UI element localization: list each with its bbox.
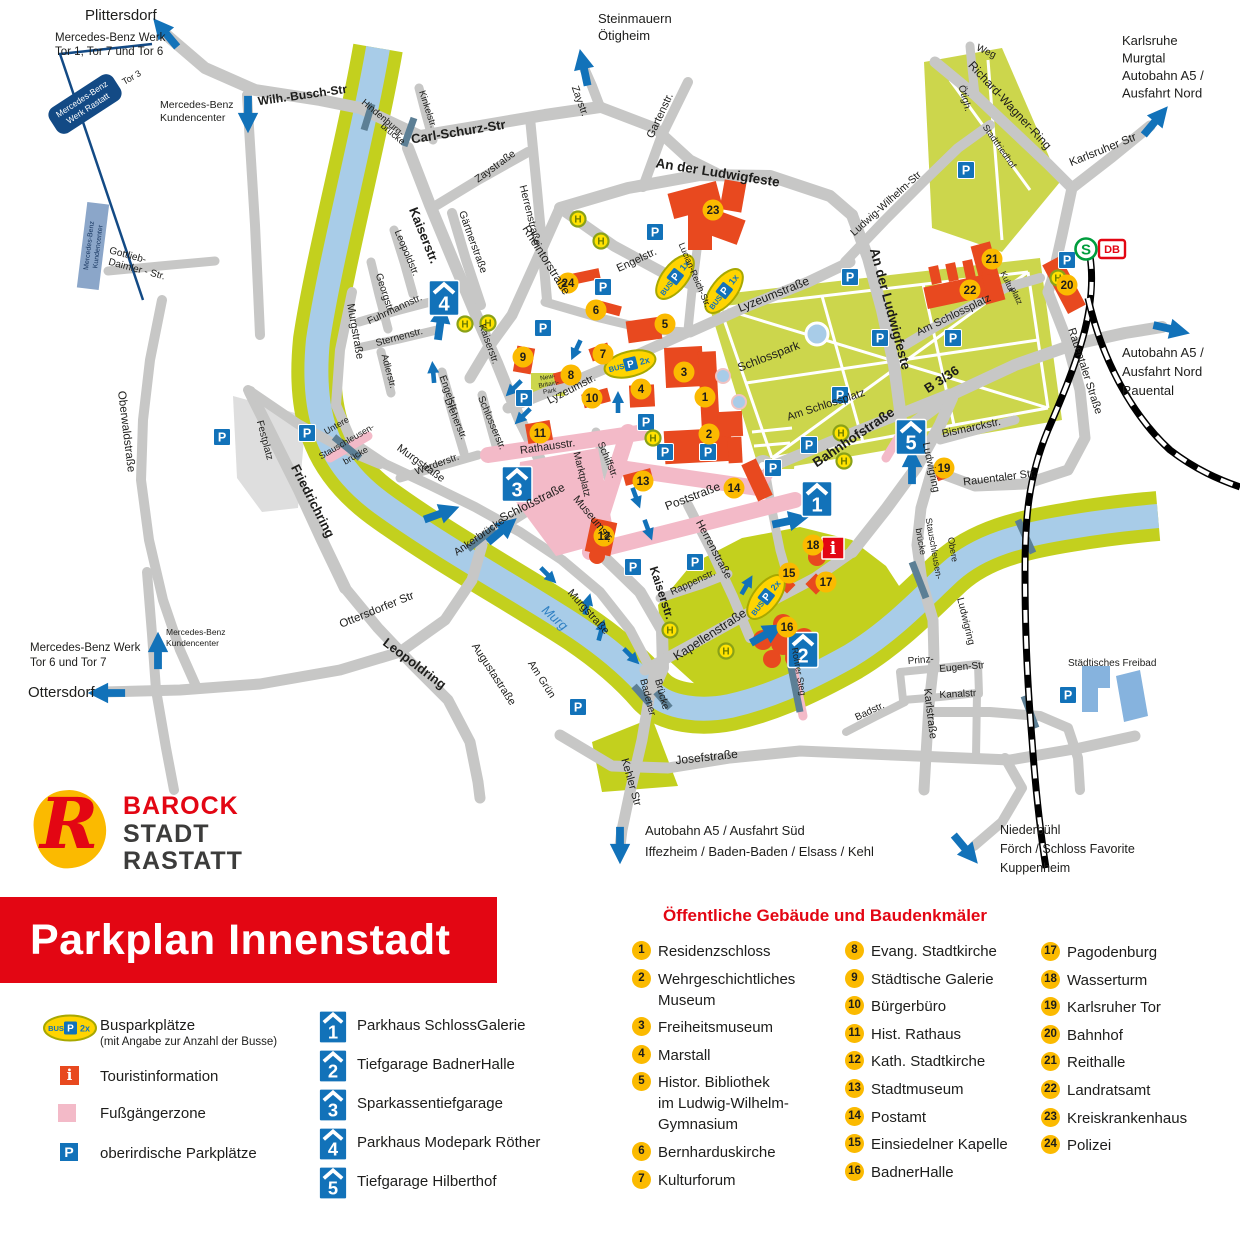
map-marker-4: 4 (631, 379, 652, 400)
parkhaus-icon-2: 2 (319, 1050, 347, 1082)
building-number-badge: 14 (845, 1107, 864, 1126)
map-marker-3: 3 (674, 362, 695, 383)
logo-line-barock: BAROCK (123, 792, 239, 821)
svg-text:H: H (722, 647, 729, 658)
map-marker-2: 2 (699, 424, 720, 445)
svg-text:Tor 1, Tor 7 und Tor 6: Tor 1, Tor 7 und Tor 6 (55, 46, 163, 58)
svg-text:Autobahn A5 / Ausfahrt Süd: Autobahn A5 / Ausfahrt Süd (645, 823, 805, 838)
building-list-item-13: 13Stadtmuseum (845, 1079, 964, 1100)
svg-text:Ötigheim: Ötigheim (598, 28, 650, 43)
building-list-item-15: 15Einsiedelner Kapelle (845, 1134, 1008, 1155)
svg-text:BUS: BUS (48, 1024, 64, 1033)
map-marker-10: 10 (582, 388, 603, 409)
building-list-item-22: 22Landratsamt (1041, 1080, 1150, 1101)
place-label: Autobahn A5 /Ausfahrt NordRauental (1122, 345, 1204, 398)
building-label: Reithalle (1067, 1052, 1125, 1073)
building-number-badge: 3 (632, 1017, 651, 1036)
building-label: Bürgerbüro (871, 996, 946, 1017)
parkplan-page: Mercedes-BenzWerk RastattMercedes-BenzKu… (0, 0, 1240, 1240)
building-label: Landratsamt (1067, 1080, 1150, 1101)
svg-text:P: P (769, 462, 777, 476)
building-label: Städtische Galerie (871, 969, 994, 990)
parking-icon: P (872, 330, 889, 347)
svg-text:P: P (303, 427, 311, 441)
svg-text:Kuppenheim: Kuppenheim (1000, 861, 1070, 875)
svg-text:3: 3 (511, 480, 522, 502)
map-marker-18: 18 (803, 535, 824, 556)
parking-icon: P (765, 460, 782, 477)
street (976, 693, 977, 757)
map-marker-20: 20 (1057, 275, 1078, 296)
svg-text:H: H (597, 237, 604, 248)
building-list-item-21: 21Reithalle (1041, 1052, 1125, 1073)
parkhaus-legend-label-5: Tiefgarage Hilberthof (357, 1173, 497, 1190)
building-label: Wasserturm (1067, 970, 1147, 991)
park-pond (806, 323, 828, 345)
building-label: Kreiskrankenhaus (1067, 1108, 1187, 1129)
building-number-badge: 19 (1041, 997, 1060, 1016)
svg-text:5: 5 (905, 433, 916, 455)
svg-text:7: 7 (600, 349, 606, 361)
pedestrian-zone-icon (58, 1104, 76, 1122)
parking-icon: P (700, 444, 717, 461)
building-list-item-23: 23Kreiskrankenhaus (1041, 1108, 1187, 1129)
svg-text:22: 22 (964, 285, 977, 297)
street-label: Prinz- (907, 654, 934, 667)
building-list-item-16: 16BadnerHalle (845, 1162, 954, 1183)
building-number-badge: 10 (845, 996, 864, 1015)
map-marker-7: 7 (593, 344, 614, 365)
building-list-item-17: 17Pagodenburg (1041, 942, 1157, 963)
svg-text:P: P (574, 701, 582, 715)
map-marker-9: 9 (513, 347, 534, 368)
parkhaus-legend-label-3: Sparkassentiefgarage (357, 1095, 503, 1112)
street-label: Ludwigring (954, 597, 976, 647)
rastatt-logo: R (30, 788, 110, 870)
svg-text:17: 17 (820, 577, 833, 589)
svg-text:Kundencenter: Kundencenter (166, 638, 219, 648)
svg-text:P: P (67, 1024, 74, 1035)
building-number-badge: 6 (632, 1142, 651, 1161)
parking-icon: P (638, 414, 655, 431)
building (727, 437, 742, 464)
surface-parking-label: oberirdische Parkplätze (100, 1145, 257, 1162)
bus-stop-icon: H (646, 431, 661, 446)
svg-text:Murgtal: Murgtal (1122, 51, 1165, 66)
svg-text:Kundencenter: Kundencenter (160, 112, 226, 124)
building-label: Einsiedelner Kapelle (871, 1134, 1008, 1155)
freibad-pool (1082, 666, 1110, 712)
logo-r-letter: R (40, 782, 98, 865)
parking-icon: P (687, 554, 704, 571)
building-label: Residenzschloss (658, 941, 771, 962)
building-label: Evang. Stadtkirche (871, 941, 997, 962)
parkhaus-legend-icon-1: 1 (316, 1008, 350, 1048)
svg-text:P: P (520, 392, 528, 406)
svg-text:4: 4 (328, 1139, 339, 1160)
street-label: Sternenstr. (375, 326, 425, 349)
svg-text:H: H (649, 434, 656, 445)
sbahn-logo-icon: S (1076, 239, 1097, 260)
bus-stop-icon: H (719, 644, 734, 659)
svg-text:H: H (574, 215, 581, 226)
svg-text:8: 8 (568, 370, 575, 382)
svg-text:20: 20 (1061, 280, 1074, 292)
parking-icon: P (842, 269, 859, 286)
oneway-arrow-icon (612, 391, 624, 413)
building-list-item-18: 18Wasserturm (1041, 970, 1147, 991)
building-number-badge: 12 (845, 1051, 864, 1070)
svg-text:19: 19 (938, 463, 951, 475)
parkhaus-legend-icon-5: 5 (316, 1164, 350, 1204)
place-label: Mercedes-BenzKundencenter (166, 627, 226, 648)
place-label: Städtisches Freibad (1068, 658, 1156, 669)
building-label: Stadtmuseum (871, 1079, 964, 1100)
direction-arrow-icon (1151, 315, 1192, 343)
parkhaus-legend-label-1: Parkhaus SchlossGalerie (357, 1017, 525, 1034)
svg-text:P: P (539, 322, 547, 336)
svg-text:23: 23 (707, 205, 720, 217)
svg-text:P: P (661, 446, 669, 460)
parking-icon: P (1060, 687, 1077, 704)
building-number-badge: 22 (1041, 1080, 1060, 1099)
db-logo-icon: DB (1099, 240, 1125, 258)
building-number-badge: 13 (845, 1079, 864, 1098)
place-label: Mercedes-Benz WerkTor 6 und Tor 7 (30, 642, 141, 669)
parking-icon: P (1059, 252, 1076, 269)
building-label: Postamt (871, 1107, 926, 1128)
parking-icon: P (958, 162, 975, 179)
svg-text:P: P (704, 446, 712, 460)
surface-parking-icon: P (60, 1143, 78, 1161)
map-marker-23: 23 (703, 200, 724, 221)
svg-text:1: 1 (328, 1022, 338, 1043)
building-list-item-3: 3Freiheitsmuseum (632, 1017, 773, 1038)
svg-text:H: H (840, 457, 847, 468)
building-list-item-24: 24Polizei (1041, 1135, 1111, 1156)
street-label: Augustastraße (469, 641, 518, 708)
svg-text:P: P (629, 561, 637, 575)
svg-text:Mercedes-Benz: Mercedes-Benz (166, 627, 226, 637)
parkhaus-icon-3: 3 (319, 1089, 347, 1121)
map-marker-15: 15 (779, 563, 800, 584)
parking-icon: P (647, 224, 664, 241)
svg-text:Iffezheim / Baden-Baden / Elsa: Iffezheim / Baden-Baden / Elsass / Kehl (645, 844, 874, 859)
place-label: Plittersdorf (85, 7, 158, 24)
svg-text:P: P (599, 281, 607, 295)
svg-text:i: i (830, 539, 837, 559)
tourist-info-label: Touristinformation (100, 1068, 218, 1085)
svg-text:Plittersdorf: Plittersdorf (85, 7, 158, 24)
svg-text:Autobahn A5 /: Autobahn A5 / (1122, 345, 1204, 360)
svg-text:Mercedes-Benz: Mercedes-Benz (160, 99, 234, 111)
street (900, 672, 903, 700)
fountain (732, 395, 746, 409)
building-list-item-7: 7Kulturforum (632, 1170, 736, 1191)
svg-text:P: P (218, 431, 226, 445)
map-marker-5: 5 (655, 314, 676, 335)
svg-text:Ottersdorf: Ottersdorf (28, 684, 96, 701)
parkhaus-icon-1: 1 (319, 1011, 347, 1043)
svg-text:H: H (666, 626, 673, 637)
svg-text:14: 14 (728, 483, 741, 495)
bus-parking-sublabel: (mit Angabe zur Anzahl der Busse) (100, 1036, 277, 1048)
map-marker-16: 16 (777, 617, 798, 638)
building-number-badge: 7 (632, 1170, 651, 1189)
parking-icon: P (657, 444, 674, 461)
svg-text:Tor 6 und Tor 7: Tor 6 und Tor 7 (30, 657, 107, 669)
svg-text:DB: DB (1104, 244, 1120, 256)
building-label: Freiheitsmuseum (658, 1017, 773, 1038)
building-label: Bernharduskirche (658, 1142, 776, 1163)
svg-text:Mercedes-Benz Werk: Mercedes-Benz Werk (55, 32, 166, 44)
building-list-item-11: 11Hist. Rathaus (845, 1024, 961, 1045)
building-list-item-6: 6Bernharduskirche (632, 1142, 776, 1163)
bus-stop-icon: H (458, 317, 473, 332)
parkhaus-legend-icon-3: 3 (316, 1086, 350, 1126)
parkhaus-legend-label-4: Parkhaus Modepark Röther (357, 1134, 540, 1151)
building-list-item-5: 5Histor. Bibliothek im Ludwig-Wilhelm- G… (632, 1072, 789, 1135)
svg-text:P: P (642, 416, 650, 430)
logo-line-stadt: STADT (123, 820, 209, 849)
svg-text:P: P (805, 439, 813, 453)
building-number-badge: 23 (1041, 1108, 1060, 1127)
svg-text:6: 6 (593, 305, 599, 317)
title-banner: Parkplan Innenstadt (0, 897, 497, 983)
svg-text:11: 11 (534, 428, 547, 440)
building-label: Polizei (1067, 1135, 1111, 1156)
svg-text:4: 4 (438, 294, 450, 316)
building-label: Pagodenburg (1067, 942, 1157, 963)
building-number-badge: 24 (1041, 1135, 1060, 1154)
page-title: Parkplan Innenstadt (0, 897, 497, 983)
parkhaus-icon-5: 5 (319, 1167, 347, 1199)
building-label: Wehrgeschichtliches Museum (658, 969, 795, 1011)
fountain (716, 369, 730, 383)
street-label: Oberwaldstraße (115, 390, 137, 473)
bus-stop-icon: H (571, 212, 586, 227)
parking-icon: P (625, 559, 642, 576)
building-label: Kulturforum (658, 1170, 736, 1191)
parking-icon: P (595, 279, 612, 296)
bus-parking-legend-icon: BUSP2x (42, 1014, 98, 1042)
building-list-item-14: 14Postamt (845, 1107, 926, 1128)
svg-text:P: P (962, 164, 970, 178)
tourist-info-icon: i (60, 1066, 79, 1085)
svg-text:Rauental: Rauental (1122, 383, 1174, 398)
svg-text:3: 3 (328, 1100, 338, 1121)
building-number-badge: 17 (1041, 942, 1060, 961)
building-label: Hist. Rathaus (871, 1024, 961, 1045)
building-list-item-2: 2Wehrgeschichtliches Museum (632, 969, 795, 1011)
svg-text:5: 5 (662, 319, 669, 331)
svg-text:S: S (1081, 242, 1091, 259)
building-label: BadnerHalle (871, 1162, 954, 1183)
pedestrian-zone-label: Fußgängerzone (100, 1105, 206, 1122)
building-number-badge: 5 (632, 1072, 651, 1091)
svg-text:Steinmauern: Steinmauern (598, 11, 672, 26)
svg-text:Karlsruhe: Karlsruhe (1122, 33, 1178, 48)
building (720, 179, 747, 212)
mercedes-kundencenter-box: Mercedes-BenzKundencenter (77, 202, 109, 290)
map-marker-13: 13 (633, 471, 654, 492)
svg-text:P: P (691, 556, 699, 570)
parkhaus-legend-icon-4: 4 (316, 1125, 350, 1165)
place-label: SteinmauernÖtigheim (598, 11, 672, 43)
building-list-item-10: 10Bürgerbüro (845, 996, 946, 1017)
map-marker-17: 17 (816, 572, 837, 593)
building-number-badge: 20 (1041, 1025, 1060, 1044)
building-number-badge: 11 (845, 1024, 864, 1043)
svg-text:Niederbühl: Niederbühl (1000, 823, 1060, 837)
building (717, 411, 743, 437)
svg-text:P: P (1063, 254, 1071, 268)
direction-arrow-icon (238, 96, 258, 133)
parking-icon: P (945, 330, 962, 347)
svg-text:2: 2 (328, 1061, 338, 1082)
svg-text:4: 4 (638, 384, 645, 396)
map-marker-1: 1 (695, 387, 716, 408)
parking-icon: P (570, 699, 587, 716)
building-list-item-9: 9Städtische Galerie (845, 969, 994, 990)
building-number-badge: 4 (632, 1045, 651, 1064)
building-list-item-4: 4Marstall (632, 1045, 711, 1066)
street-label: Kanalstr (939, 688, 977, 701)
parking-icon: P (299, 425, 316, 442)
parkhaus-legend-label-2: Tiefgarage BadnerHalle (357, 1056, 515, 1073)
parking-icon: P (535, 320, 552, 337)
svg-text:2: 2 (706, 429, 712, 441)
map-marker-6: 6 (586, 300, 607, 321)
parkhaus-icon-4: 4 (429, 281, 459, 316)
building-list-item-1: 1Residenzschloss (632, 941, 771, 962)
street-label: Tor 3 (120, 68, 142, 87)
svg-text:Mercedes-Benz Werk: Mercedes-Benz Werk (30, 642, 141, 654)
freibad-pool (1116, 670, 1148, 722)
building-number-badge: 15 (845, 1134, 864, 1153)
svg-text:9: 9 (520, 352, 526, 364)
place-label: KarlsruheMurgtalAutobahn A5 /Ausfahrt No… (1122, 33, 1204, 101)
svg-text:1: 1 (811, 495, 822, 517)
bus-parking-label: Busparkplätze (100, 1017, 195, 1034)
tourist-info-map-icon: i (822, 537, 844, 559)
building-list-item-8: 8Evang. Stadtkirche (845, 941, 997, 962)
building-label: Histor. Bibliothek im Ludwig-Wilhelm- Gy… (658, 1072, 789, 1135)
building-number-badge: 2 (632, 969, 651, 988)
parkhaus-legend-icon-2: 2 (316, 1047, 350, 1087)
building-list-item-19: 19Karlsruher Tor (1041, 997, 1161, 1018)
oneway-arrow-icon (566, 338, 586, 363)
parking-icon: P (801, 437, 818, 454)
svg-text:10: 10 (586, 393, 599, 405)
svg-text:1: 1 (702, 392, 709, 404)
buildings-section-title: Öffentliche Gebäude und Baudenkmäler (663, 906, 987, 926)
svg-text:Städtisches Freibad: Städtisches Freibad (1068, 658, 1156, 669)
map-marker-21: 21 (982, 249, 1003, 270)
building-number-badge: 9 (845, 969, 864, 988)
street-label: Am Grün (525, 658, 558, 700)
place-label: Ottersdorf (28, 684, 96, 701)
building-number-badge: 21 (1041, 1052, 1060, 1071)
building (589, 548, 605, 564)
place-label: Autobahn A5 / Ausfahrt SüdIffezheim / Ba… (645, 823, 874, 859)
svg-text:Förch / Schloss Favorite: Förch / Schloss Favorite (1000, 842, 1135, 856)
svg-text:5: 5 (328, 1178, 338, 1199)
svg-text:Ausfahrt Nord: Ausfahrt Nord (1122, 86, 1202, 101)
svg-text:2x: 2x (80, 1024, 90, 1034)
map-marker-14: 14 (724, 478, 745, 499)
parkhaus-icon-4: 4 (319, 1128, 347, 1160)
logo-line-rastatt: RASTATT (123, 847, 243, 876)
svg-text:H: H (461, 320, 468, 331)
svg-text:15: 15 (783, 568, 796, 580)
building-number-badge: 16 (845, 1162, 864, 1181)
svg-text:P: P (876, 332, 884, 346)
building-label: Karlsruher Tor (1067, 997, 1161, 1018)
building-number-badge: 1 (632, 941, 651, 960)
svg-text:21: 21 (986, 254, 999, 266)
svg-text:P: P (1064, 689, 1072, 703)
svg-text:13: 13 (637, 476, 650, 488)
bus-stop-icon: H (594, 234, 609, 249)
parking-icon: P (516, 390, 533, 407)
building-number-badge: 8 (845, 941, 864, 960)
place-label: NiederbühlFörch / Schloss FavoriteKuppen… (1000, 823, 1135, 875)
parkhaus-icon-1: 1 (802, 482, 832, 517)
svg-text:Autobahn A5 /: Autobahn A5 / (1122, 68, 1204, 83)
street-label: Engelstr. (437, 374, 461, 414)
building-number-badge: 18 (1041, 970, 1060, 989)
bus-stop-icon: H (663, 623, 678, 638)
svg-text:P: P (949, 332, 957, 346)
svg-text:P: P (846, 271, 854, 285)
place-label: Mercedes-BenzKundencenter (160, 99, 234, 124)
svg-text:P: P (651, 226, 659, 240)
street-label: Kinkelstr. (416, 89, 438, 129)
parking-icon: P (214, 429, 231, 446)
building-label: Kath. Stadtkirche (871, 1051, 985, 1072)
svg-text:16: 16 (781, 622, 794, 634)
svg-text:18: 18 (807, 540, 820, 552)
building-list-item-12: 12Kath. Stadtkirche (845, 1051, 985, 1072)
svg-text:Ausfahrt Nord: Ausfahrt Nord (1122, 364, 1202, 379)
svg-text:3: 3 (681, 367, 687, 379)
building-label: Bahnhof (1067, 1025, 1123, 1046)
street-label: Ludwig-Wilhelm-Str (848, 169, 924, 239)
building-label: Marstall (658, 1045, 711, 1066)
building-list-item-20: 20Bahnhof (1041, 1025, 1123, 1046)
